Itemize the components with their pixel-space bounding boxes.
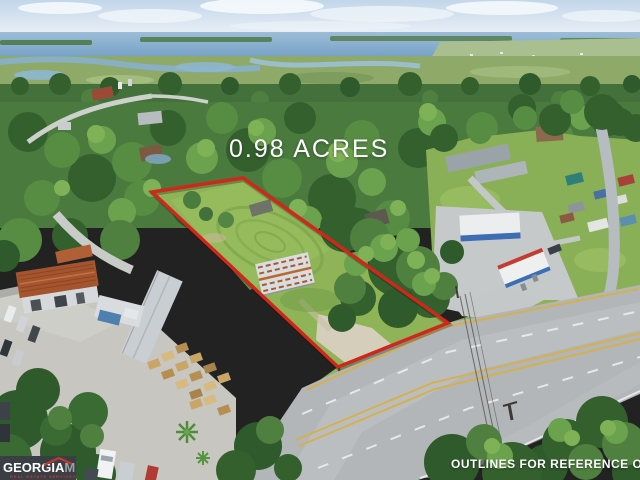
roof-icon xyxy=(43,457,73,466)
mls-logo: GEORGIAMLS REAL ESTATE SERVICES xyxy=(0,456,76,480)
marsh-horizon xyxy=(0,32,640,90)
roof-icon-line xyxy=(44,458,72,465)
disclaimer-label: OUTLINES FOR REFERENCE ONLY xyxy=(451,457,640,471)
sky xyxy=(0,0,640,34)
mls-logo-tagline: REAL ESTATE SERVICES xyxy=(10,474,76,479)
aerial-photo xyxy=(0,0,640,480)
listing-photo: 0.98 ACRES OUTLINES FOR REFERENCE ONLY G… xyxy=(0,0,640,480)
acreage-label: 0.98 ACRES xyxy=(229,135,389,164)
